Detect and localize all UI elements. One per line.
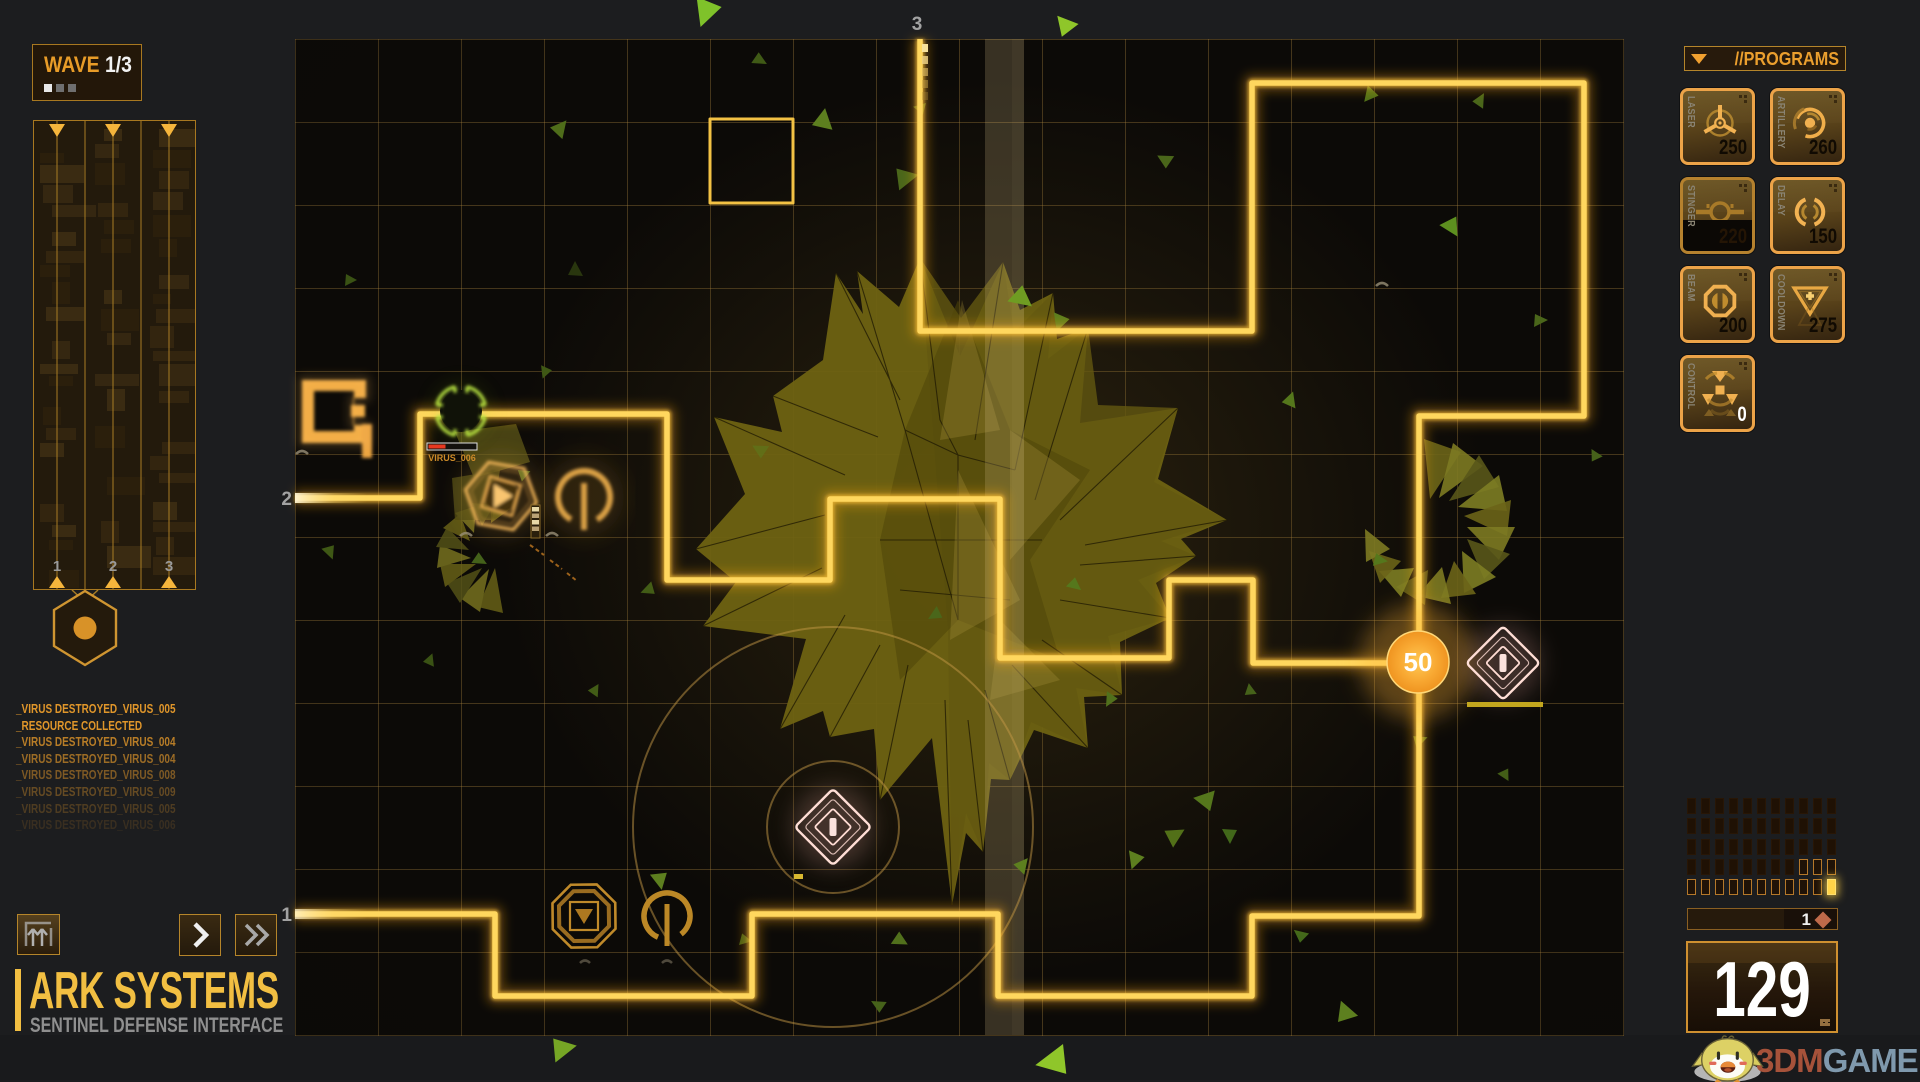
- svg-text:3DMGAME: 3DMGAME: [1756, 1042, 1918, 1079]
- svg-text:VIRUS_006: VIRUS_006: [428, 453, 476, 463]
- svg-text:3: 3: [912, 14, 923, 35]
- svg-text:1: 1: [53, 558, 61, 575]
- svg-text:3: 3: [165, 558, 173, 575]
- svg-text:2: 2: [109, 558, 117, 575]
- svg-text:2: 2: [281, 489, 292, 510]
- svg-text:1: 1: [281, 905, 292, 926]
- svg-text:50: 50: [1404, 647, 1433, 677]
